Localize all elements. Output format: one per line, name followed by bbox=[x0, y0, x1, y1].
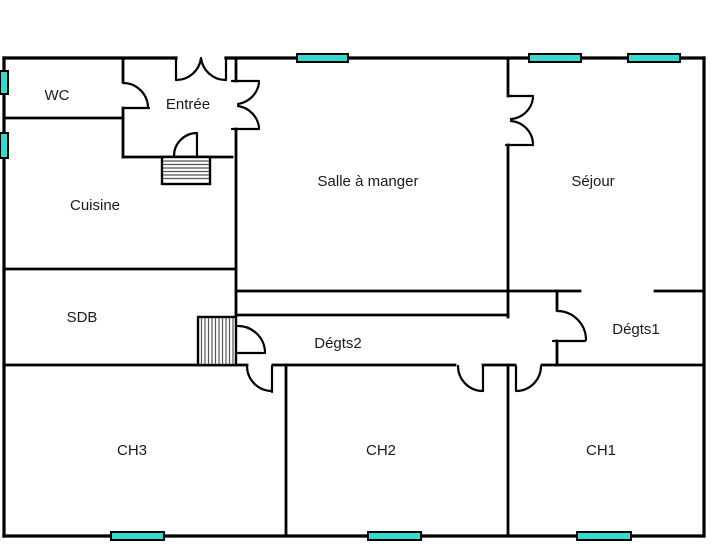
hatched-features bbox=[162, 157, 236, 365]
door-ch3 bbox=[247, 366, 272, 392]
room-label-ch2: CH2 bbox=[366, 442, 396, 459]
stairs-entree bbox=[162, 157, 210, 184]
room-label-ch3: CH3 bbox=[117, 442, 147, 459]
window-sejour-1 bbox=[529, 54, 581, 62]
window-ch2 bbox=[368, 532, 421, 540]
room-label-sdb: SDB bbox=[67, 309, 98, 326]
door-wc bbox=[123, 83, 149, 108]
room-label-wc: WC bbox=[45, 87, 70, 104]
room-label-degts2: Dégts2 bbox=[314, 335, 362, 352]
window-ch1 bbox=[577, 532, 631, 540]
window-sejour-2 bbox=[628, 54, 680, 62]
door-degts2-left bbox=[238, 326, 265, 353]
door-entry-double bbox=[176, 58, 226, 80]
window-wc bbox=[0, 71, 8, 94]
stairs-corridor bbox=[198, 317, 236, 365]
door-entree-salle-double bbox=[232, 81, 259, 129]
room-label-entree: Entrée bbox=[166, 96, 210, 113]
door-salle-sejour-double bbox=[506, 96, 533, 145]
room-label-ch1: CH1 bbox=[586, 442, 616, 459]
room-label-salle-a-manger: Salle à manger bbox=[318, 173, 419, 190]
room-label-sejour: Séjour bbox=[571, 173, 614, 190]
windows bbox=[0, 54, 680, 540]
floor-plan: WCEntréeCuisineSalle à mangerSéjourSDBDé… bbox=[0, 0, 718, 546]
door-ch1 bbox=[516, 366, 541, 391]
floor-plan-svg: WCEntréeCuisineSalle à mangerSéjourSDBDé… bbox=[0, 0, 718, 546]
room-labels: WCEntréeCuisineSalle à mangerSéjourSDBDé… bbox=[45, 87, 660, 459]
interior-walls bbox=[4, 58, 704, 536]
window-cuisine bbox=[0, 133, 8, 158]
door-entree-cuisine bbox=[174, 133, 197, 157]
door-ch2 bbox=[458, 366, 483, 391]
window-salle-a-manger bbox=[297, 54, 348, 62]
window-ch3 bbox=[111, 532, 164, 540]
exterior-walls bbox=[4, 58, 704, 536]
room-label-cuisine: Cuisine bbox=[70, 197, 120, 214]
door-degts1 bbox=[553, 311, 586, 341]
room-label-degts1: Dégts1 bbox=[612, 321, 660, 338]
